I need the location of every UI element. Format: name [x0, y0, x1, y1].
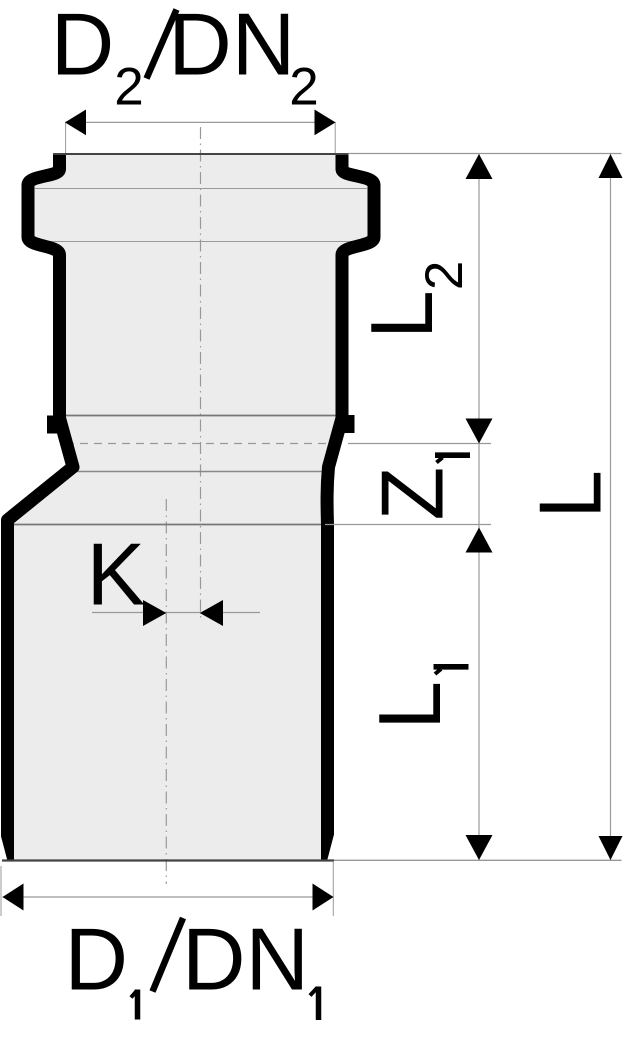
svg-text:K: K	[87, 525, 146, 624]
svg-text:Z: Z	[362, 467, 461, 521]
svg-text:L: L	[360, 681, 459, 730]
svg-text:L: L	[521, 470, 620, 519]
